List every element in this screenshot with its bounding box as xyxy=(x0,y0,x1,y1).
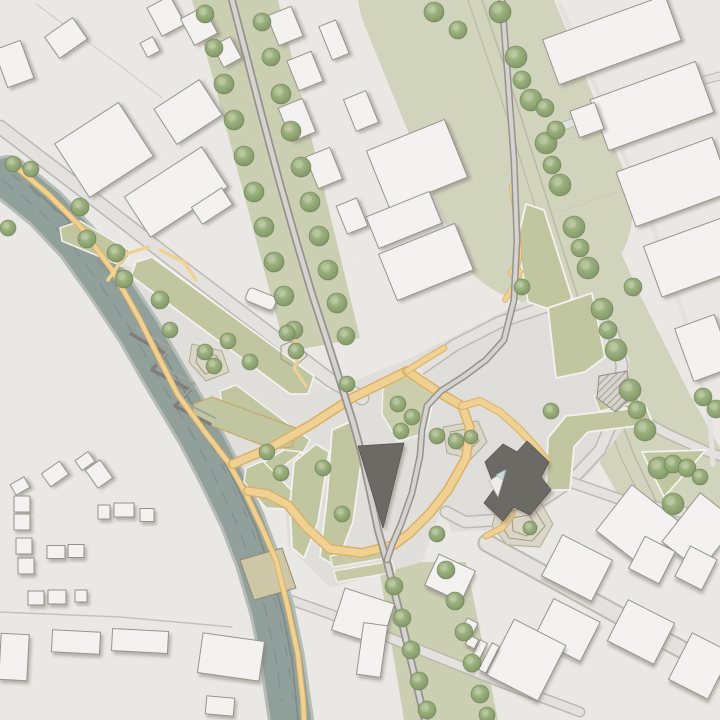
site-plan-canvas xyxy=(0,0,720,720)
paper-grain xyxy=(0,0,720,720)
site-plan xyxy=(0,0,720,720)
